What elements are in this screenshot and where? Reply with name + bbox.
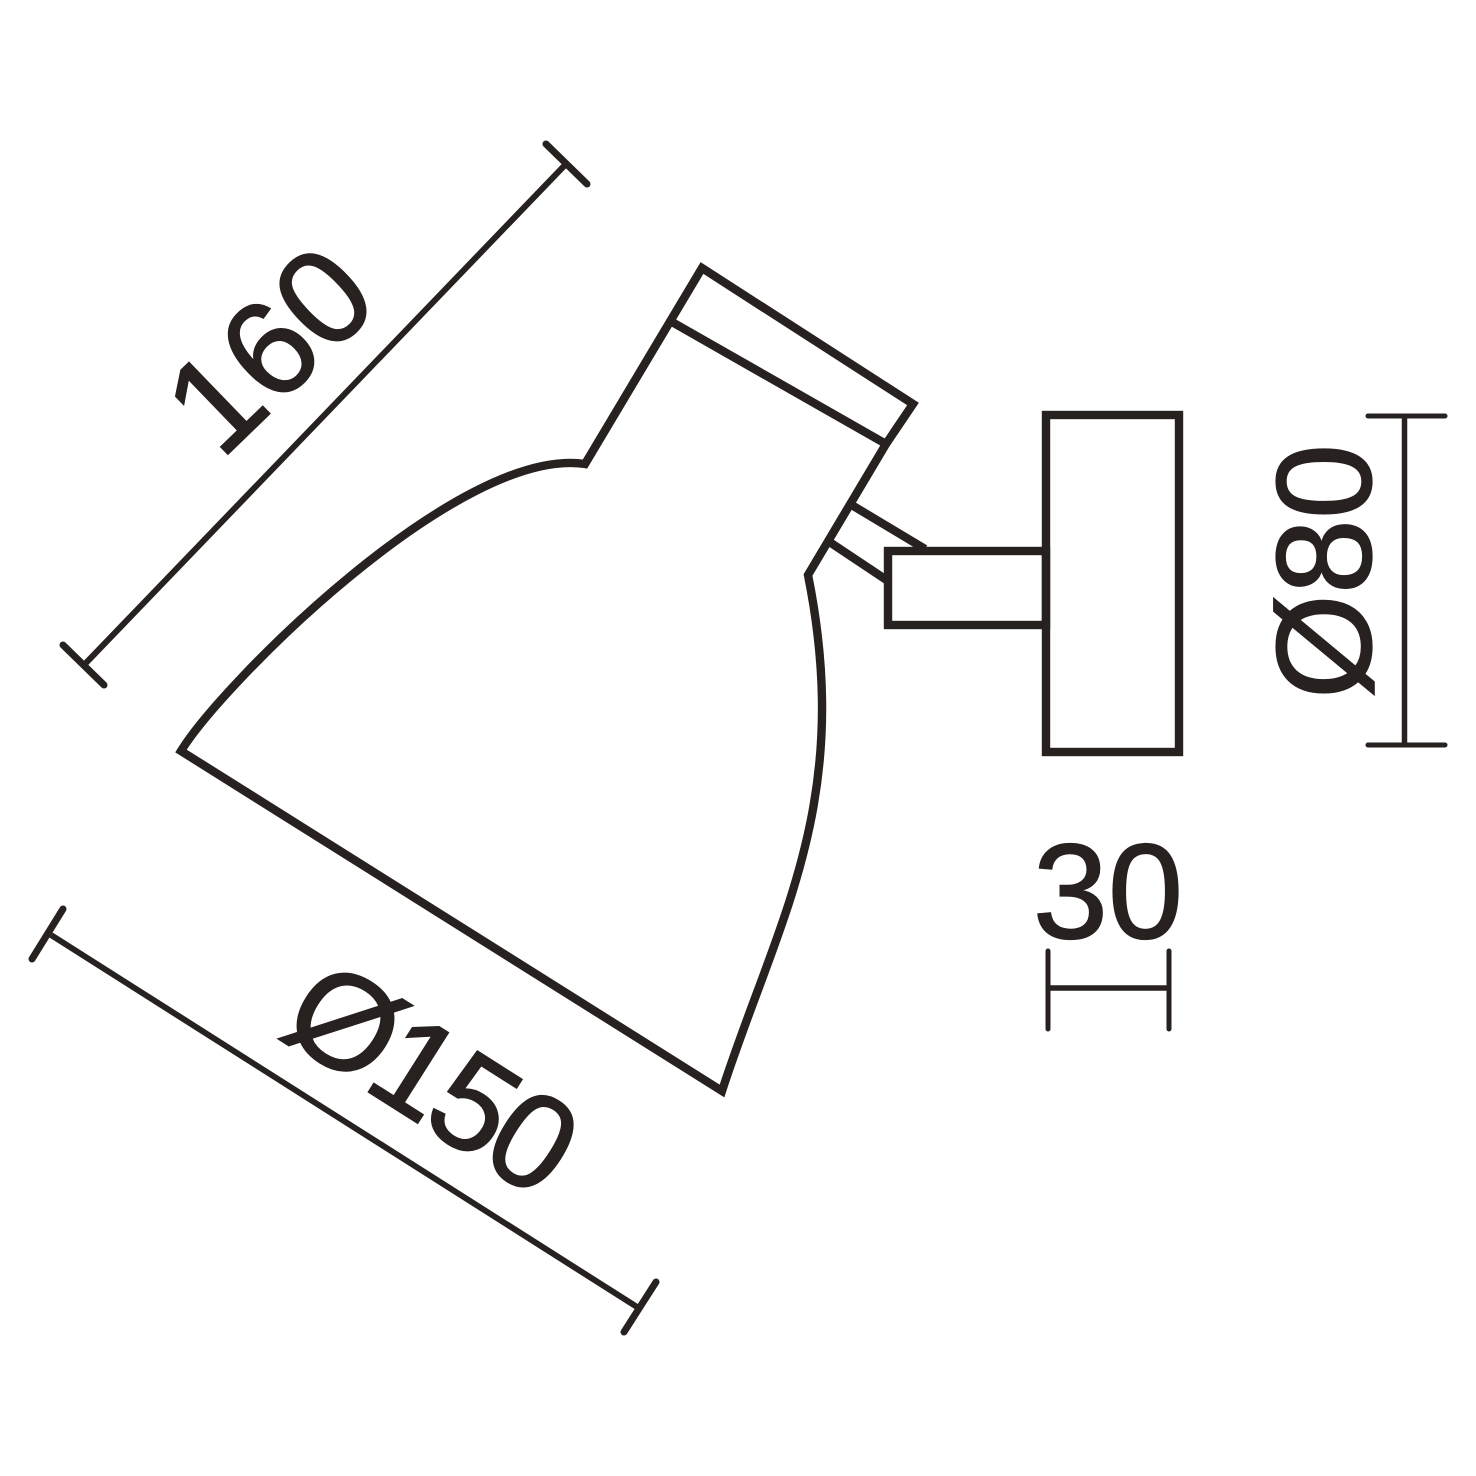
svg-text:30: 30	[1033, 816, 1183, 967]
svg-text:160: 160	[136, 217, 403, 482]
svg-text:Ø80: Ø80	[1249, 444, 1400, 699]
